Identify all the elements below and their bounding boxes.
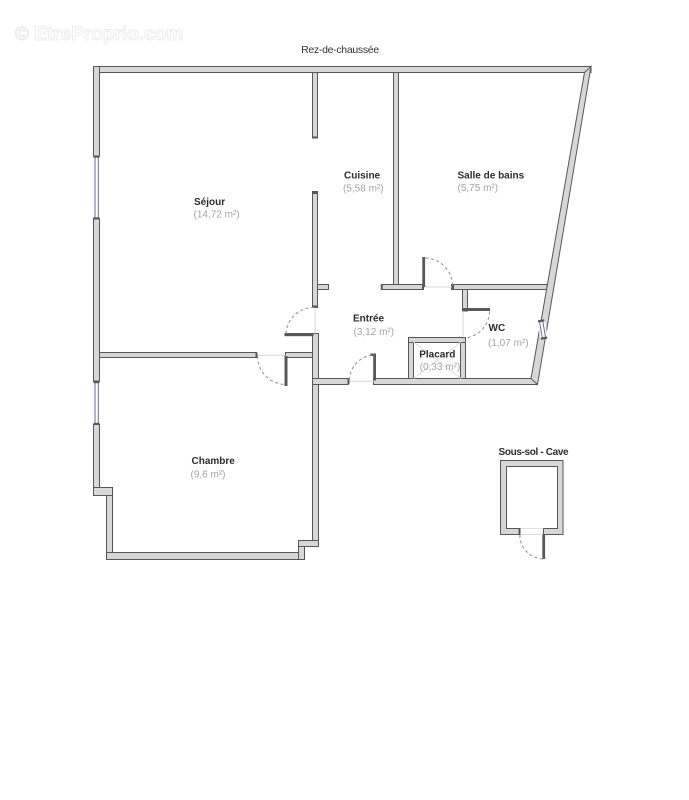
svg-text:(14,72 m²): (14,72 m²)	[194, 210, 240, 221]
svg-text:(1,07 m²): (1,07 m²)	[488, 338, 529, 349]
svg-text:Chambre: Chambre	[192, 456, 236, 467]
svg-text:Placard: Placard	[419, 350, 455, 361]
svg-text:(5,58 m²): (5,58 m²)	[343, 184, 384, 195]
svg-text:(9,6 m²): (9,6 m²)	[191, 469, 226, 480]
svg-text:(3,12 m²): (3,12 m²)	[354, 327, 395, 338]
svg-text:© EtreProprio.com: © EtreProprio.com	[15, 24, 183, 45]
svg-text:Cuisine: Cuisine	[344, 171, 381, 182]
svg-text:Sous-sol - Cave: Sous-sol - Cave	[499, 447, 570, 458]
svg-text:Salle de bains: Salle de bains	[458, 170, 525, 181]
svg-text:WC: WC	[489, 323, 506, 334]
svg-text:Séjour: Séjour	[194, 197, 225, 208]
svg-text:Entrée: Entrée	[353, 314, 385, 325]
svg-text:Rez-de-chaussée: Rez-de-chaussée	[301, 44, 379, 56]
svg-text:(0,33 m²): (0,33 m²)	[420, 362, 461, 373]
svg-text:(5,75 m²): (5,75 m²)	[458, 183, 499, 194]
